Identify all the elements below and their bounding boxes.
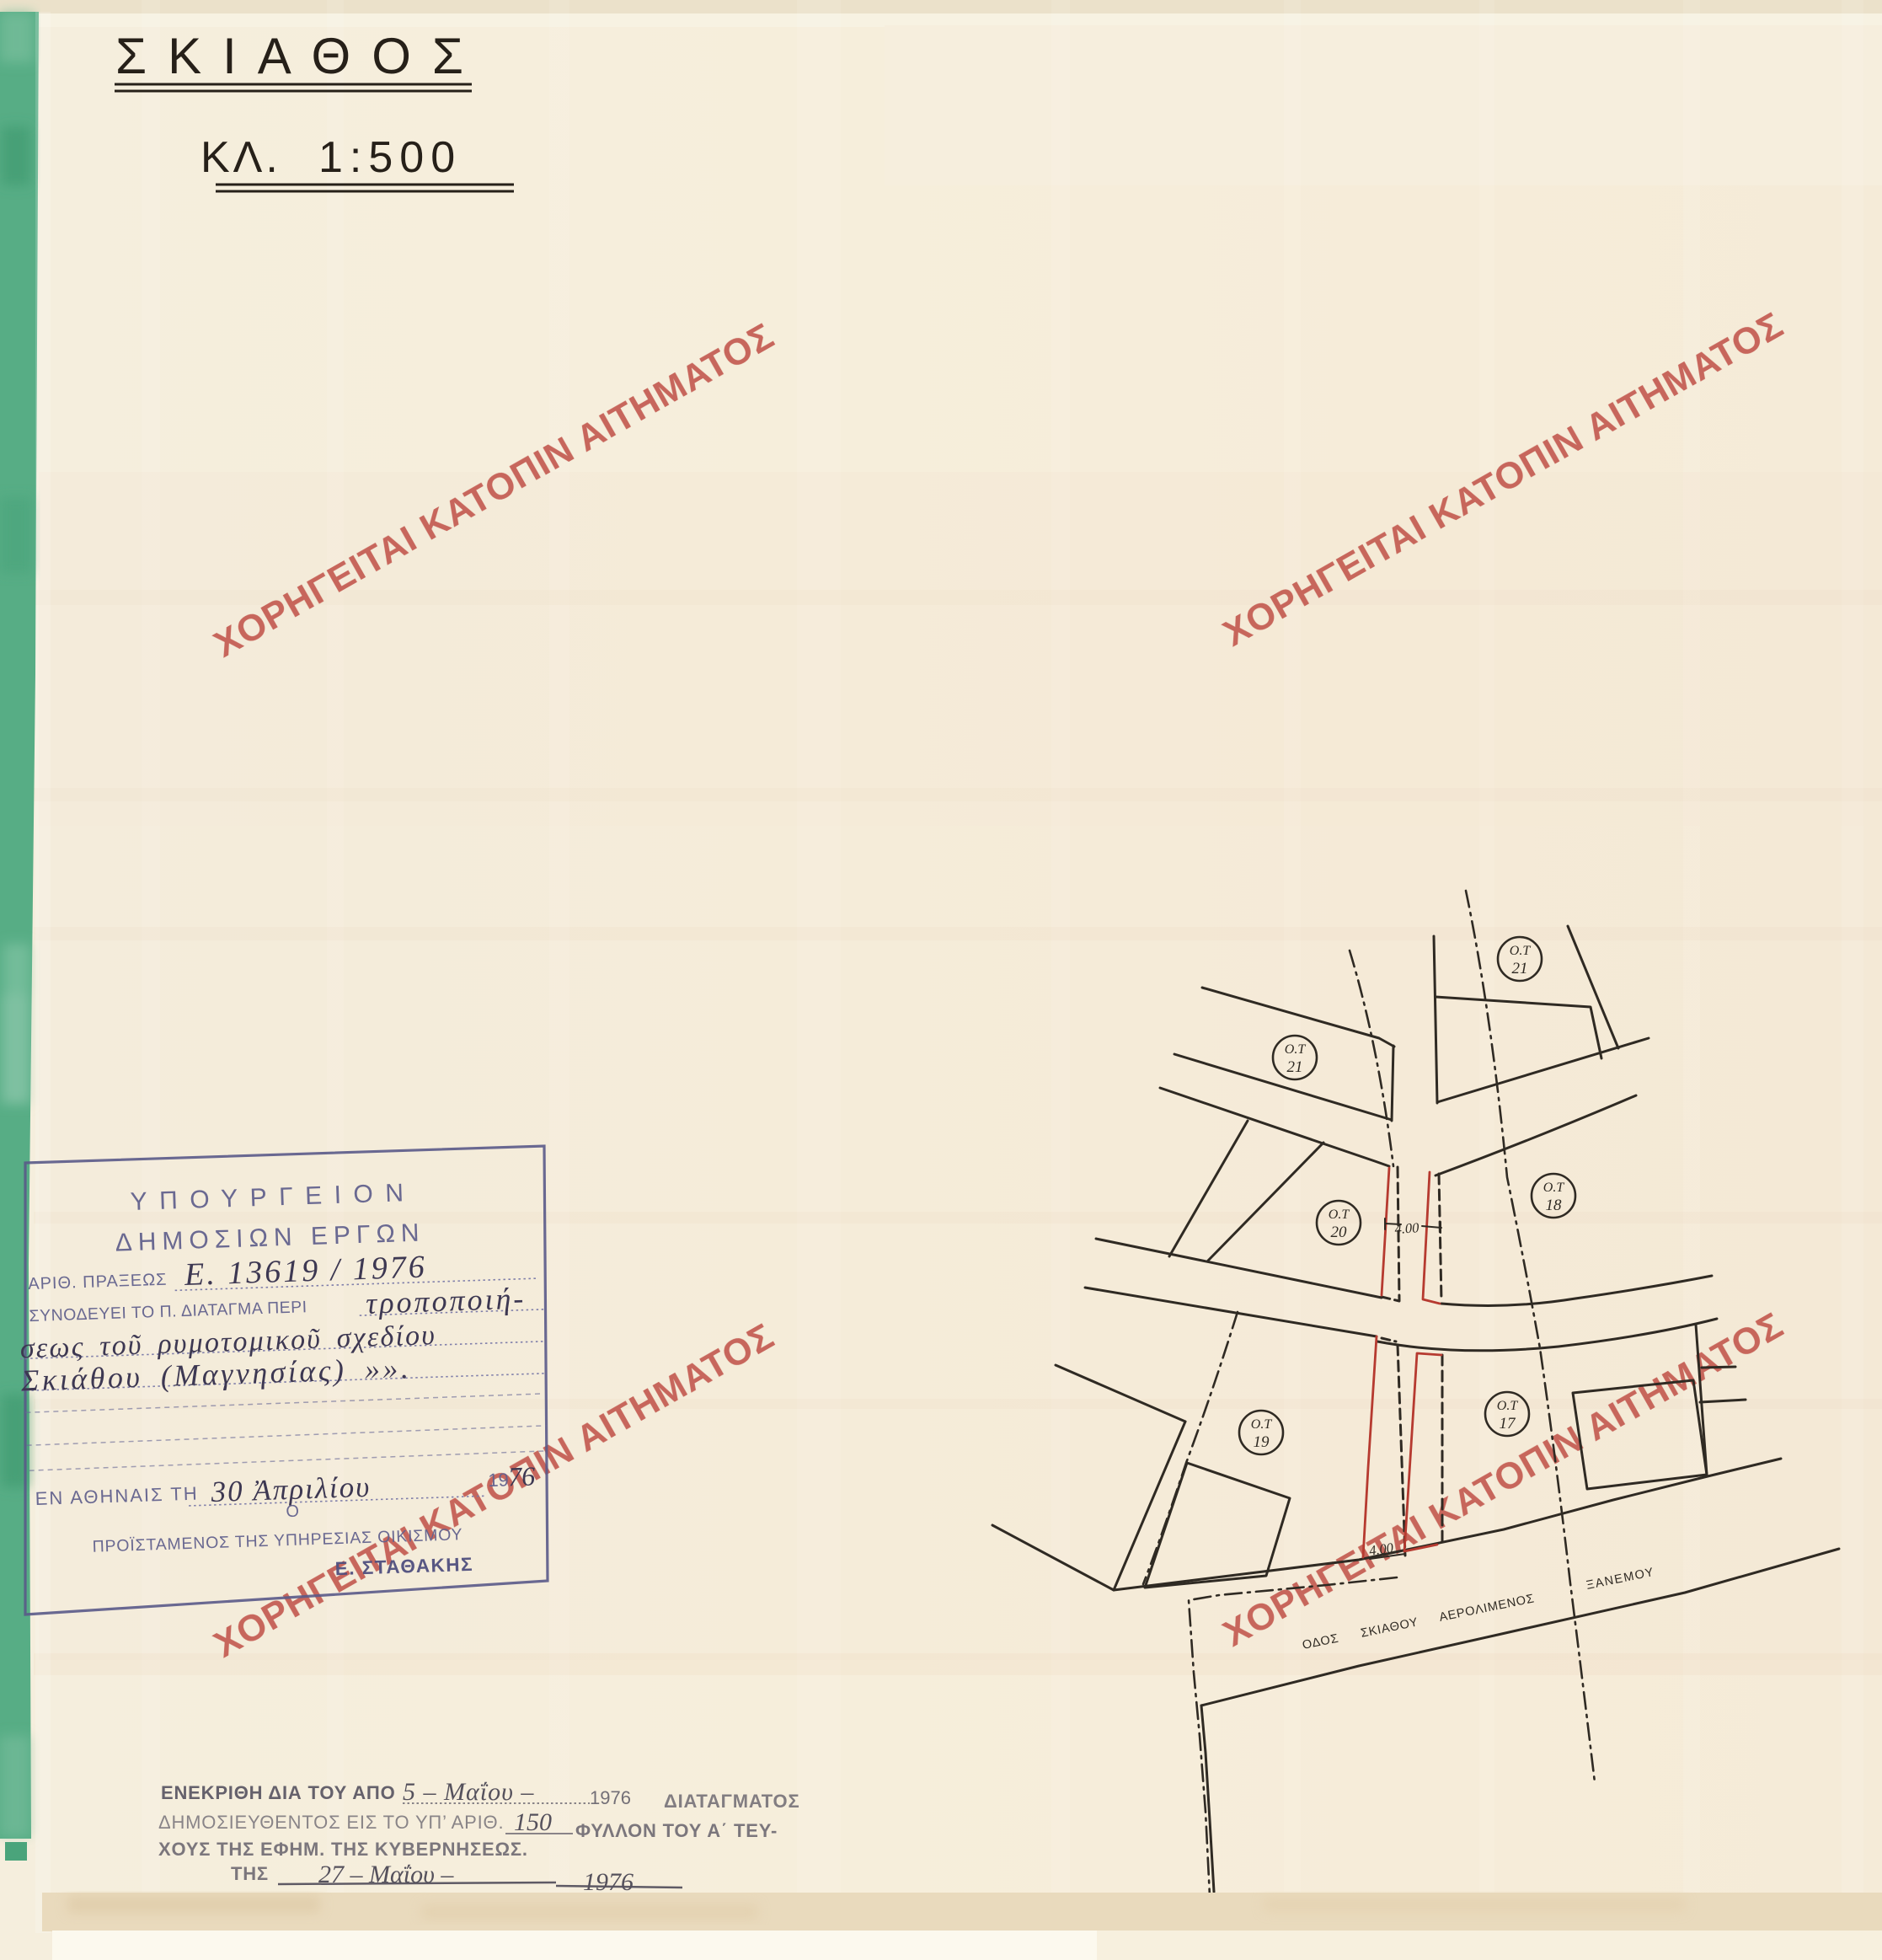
svg-text:21: 21 [1512,960,1528,977]
svg-text:30 Ἀπριλίου: 30 Ἀπριλίου [210,1470,372,1508]
svg-text:19: 19 [1254,1433,1270,1451]
svg-text:1976: 1976 [583,1868,634,1896]
svg-text:O.T: O.T [1497,1399,1519,1413]
svg-text:τροποποιή-: τροποποιή- [366,1282,527,1320]
svg-text:21: 21 [1287,1058,1303,1076]
svg-text:ΧΟΥΣ ΤΗΣ ΕΦΗΜ. ΤΗΣ ΚΥΒΕΡΝΗΣΕΩΣ: ΧΟΥΣ ΤΗΣ ΕΦΗΜ. ΤΗΣ ΚΥΒΕΡΝΗΣΕΩΣ. [158,1839,528,1860]
svg-text:ΣΚΙΑΘΟΣ: ΣΚΙΑΘΟΣ [115,28,484,84]
svg-text:ΔΙΑΤΑΓΜΑΤΟΣ: ΔΙΑΤΑΓΜΑΤΟΣ [664,1791,799,1812]
svg-text:1:500: 1:500 [318,133,462,182]
svg-text:76: 76 [508,1460,536,1491]
svg-text:O.T: O.T [1251,1417,1273,1432]
svg-text:O.T: O.T [1285,1042,1307,1057]
svg-text:ΚΛ.: ΚΛ. [200,133,281,182]
svg-text:O.T: O.T [1510,944,1532,958]
svg-text:ΤΗΣ: ΤΗΣ [231,1863,269,1884]
svg-text:ΕΝΕΚΡΙΘΗ ΔΙΑ ΤΟΥ ΑΠΟ: ΕΝΕΚΡΙΘΗ ΔΙΑ ΤΟΥ ΑΠΟ [161,1782,396,1803]
svg-text:ΦΥΛΛΟΝ ΤΟΥ Α΄ ΤΕΥ-: ΦΥΛΛΟΝ ΤΟΥ Α΄ ΤΕΥ- [575,1820,778,1841]
svg-text:O.T: O.T [1329,1208,1350,1222]
svg-text:20: 20 [1331,1224,1348,1241]
svg-text:ΔΗΜΟΣΙΕΥΘΕΝΤΟΣ ΕΙΣ ΤΟ ΥΠ’ ΑΡΙΘ: ΔΗΜΟΣΙΕΥΘΕΝΤΟΣ ΕΙΣ ΤΟ ΥΠ’ ΑΡΙΘ. [158,1812,504,1833]
svg-text:19: 19 [488,1469,509,1491]
svg-text:18: 18 [1546,1197,1563,1214]
svg-text:4.00: 4.00 [1394,1219,1420,1237]
svg-text:5 – Μαΐου –: 5 – Μαΐου – [403,1778,534,1806]
svg-text:17: 17 [1500,1415,1517,1433]
svg-text:O.T: O.T [1543,1181,1565,1195]
svg-text:1976: 1976 [590,1787,631,1808]
svg-text:150: 150 [514,1808,552,1836]
svg-text:27 – Μαΐου –: 27 – Μαΐου – [318,1861,454,1888]
